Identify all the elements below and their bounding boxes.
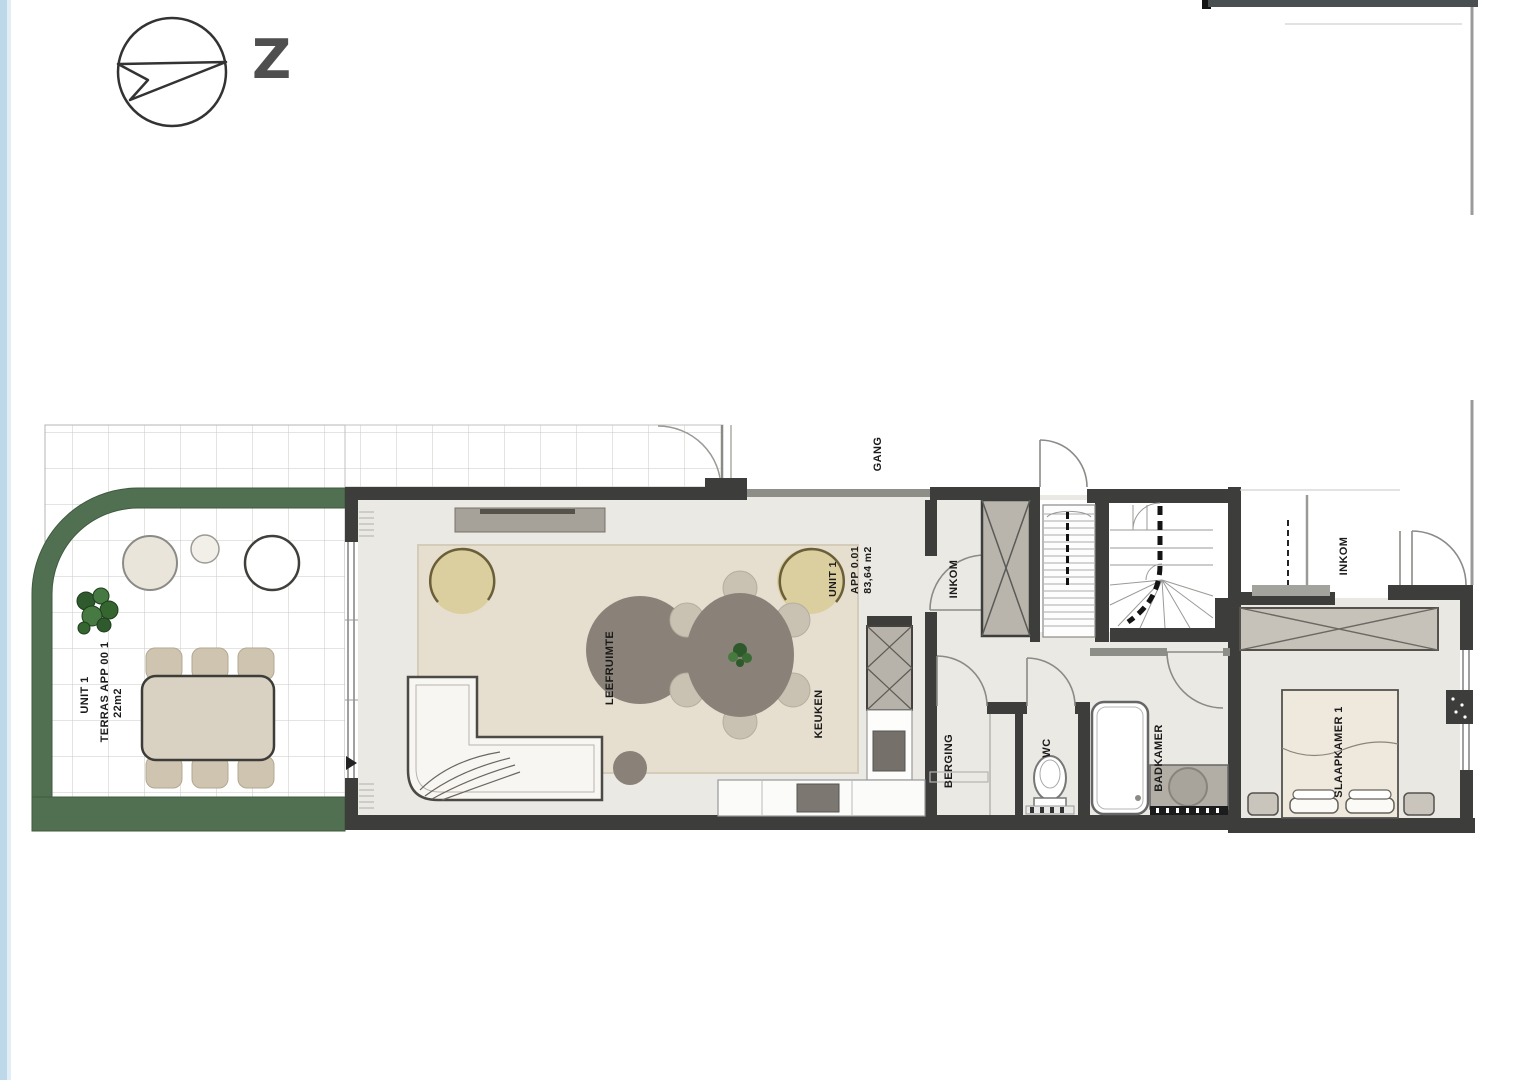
north-label: Z: [252, 28, 291, 91]
entry-label-inkom-right: INKOM: [1338, 537, 1350, 576]
hedge-bottom: [32, 797, 345, 831]
north-arrow-icon: [118, 18, 226, 126]
unit-label: UNIT 1: [827, 561, 839, 597]
planter-pot: [123, 536, 177, 590]
staircase-winder: [1109, 503, 1215, 628]
room-label-wc: WC: [1041, 738, 1053, 757]
entry-closet: [982, 500, 1030, 636]
floorplan-drawing: Z: [0, 0, 1514, 1080]
cooktop: [797, 784, 839, 812]
nightstand: [1404, 793, 1434, 815]
planter-pot-small: [191, 535, 219, 563]
kitchen-tall-cabinet: [867, 626, 912, 710]
area-label: 83,64 m2: [862, 546, 874, 594]
terrace-table: [142, 676, 274, 760]
terrace-label-name: TERRAS APP 00 1: [99, 642, 111, 743]
pillow: [1346, 798, 1394, 813]
wall-pier: [1446, 690, 1473, 724]
toilet: [1034, 756, 1066, 800]
pillow: [1290, 798, 1338, 813]
terrace-label-unit: UNIT 1: [79, 676, 91, 713]
site-boundary-lines: [1202, 0, 1478, 585]
page-edge-strip: [0, 0, 11, 1080]
room-label-badkamer: BADKAMER: [1153, 724, 1165, 791]
room-label-inkom: INKOM: [948, 560, 960, 599]
armchair: [429, 548, 495, 614]
wc-threshold: [1026, 806, 1074, 814]
wardrobe-closet: [1240, 608, 1438, 650]
staircase-straight: [1043, 505, 1095, 637]
room-label-keuken: KEUKEN: [813, 690, 825, 739]
room-label-leefruimte: LEEFRUIMTE: [604, 631, 616, 705]
corridor-label-gang: GANG: [872, 437, 884, 472]
kitchen-sink: [873, 731, 905, 771]
app-number-label: APP 0.01: [849, 546, 861, 594]
room-label-slaapkamer: SLAAPKAMER 1: [1333, 706, 1345, 798]
nightstand: [1248, 793, 1278, 815]
terrace-label-area: 22m2: [112, 688, 124, 718]
room-label-berging: BERGING: [943, 734, 955, 788]
planter-pot: [245, 536, 299, 590]
washbasin: [1169, 768, 1207, 806]
side-table: [613, 751, 647, 785]
bathroom-threshold: [1150, 806, 1228, 815]
floorplan-page: Z: [0, 0, 1514, 1080]
